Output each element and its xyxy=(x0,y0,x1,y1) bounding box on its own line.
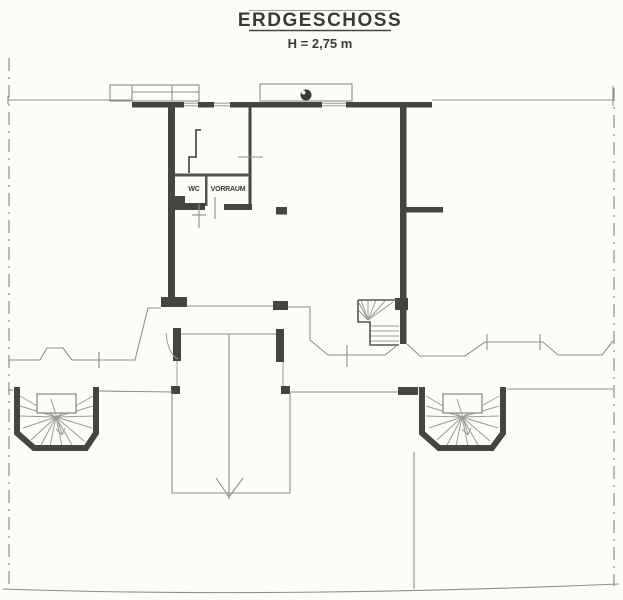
west-wall-footing xyxy=(161,297,187,307)
east-wall-stub xyxy=(402,207,443,213)
entrance-arrow xyxy=(216,334,243,499)
court-outline xyxy=(172,393,290,493)
upper-bays xyxy=(110,84,352,101)
floor-plan-page: ERDGESCHOSS H = 2,75 m xyxy=(0,0,623,600)
wall-block xyxy=(172,196,185,210)
stair-outline xyxy=(358,300,399,345)
terrain-outline xyxy=(8,301,613,368)
closet-partition xyxy=(189,130,201,173)
wc-vorraum-rooms: WC VORRAUM xyxy=(172,130,252,228)
height-note: H = 2,75 m xyxy=(288,36,353,51)
room-label-wc: WC xyxy=(188,186,199,193)
pillar xyxy=(276,207,287,215)
page-border xyxy=(3,58,619,593)
interior-wall xyxy=(249,107,252,210)
room-label-vorraum: VORRAUM xyxy=(211,186,246,193)
title-block: ERDGESCHOSS H = 2,75 m xyxy=(238,10,402,51)
winder-stair xyxy=(358,300,399,345)
room-bottom-wall xyxy=(224,204,252,210)
bay-outline-left xyxy=(110,85,199,101)
right-stair-void xyxy=(443,394,482,413)
room-top-wall xyxy=(174,174,250,177)
post-right xyxy=(281,386,290,394)
bay-wall-cap xyxy=(398,387,418,395)
border-bottom xyxy=(3,584,619,593)
page-title: ERDGESCHOSS xyxy=(238,10,402,31)
right-exterior-stair xyxy=(422,387,503,448)
post-left xyxy=(171,386,180,394)
left-stair-void xyxy=(37,394,76,413)
left-exterior-stair xyxy=(17,387,96,448)
terrace-pillar-right xyxy=(276,329,284,362)
wall-stub-block xyxy=(273,301,288,310)
floor-plan-svg: ERDGESCHOSS H = 2,75 m xyxy=(0,0,623,600)
north-wall xyxy=(132,102,432,108)
wc-partition xyxy=(205,176,208,206)
